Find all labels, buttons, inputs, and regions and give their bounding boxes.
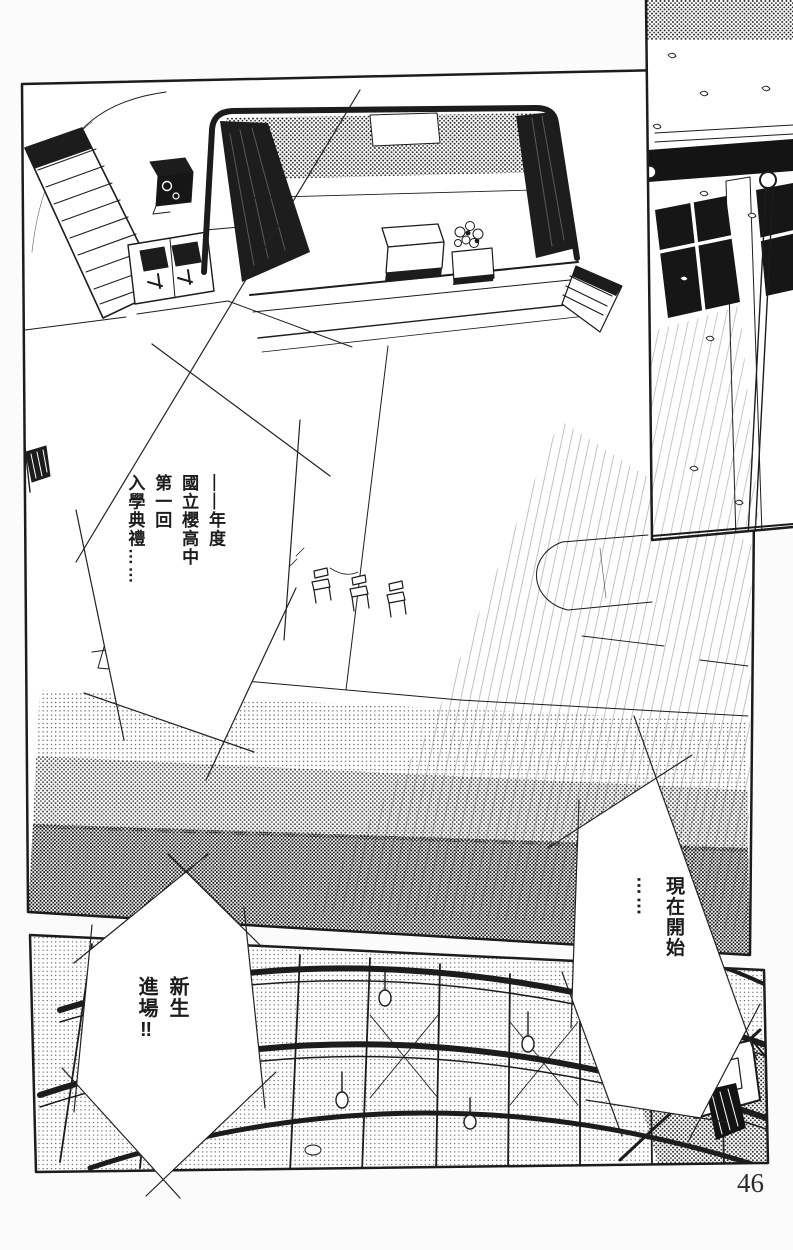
bubble-text-ceremony: ——年度 國立櫻高中 第一回 入學典禮……	[116, 474, 228, 736]
bubble-text-new-students: 新生 進場‼	[124, 976, 192, 1126]
manga-page: ——年度 國立櫻高中 第一回 入學典禮…… 現在開始 …… 新生 進場‼ 46	[0, 0, 793, 1250]
page-number: 46	[706, 1168, 764, 1199]
bubble-text-now-start: 現在開始 ……	[622, 876, 688, 1100]
panel-window-petals	[644, 0, 793, 540]
podium	[382, 224, 444, 282]
